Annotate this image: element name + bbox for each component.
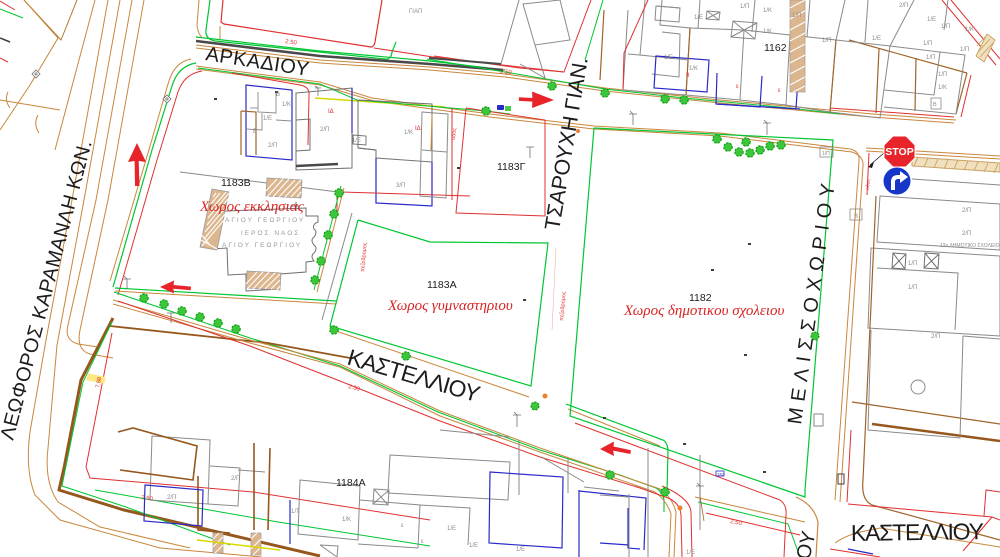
svg-text:1/Ε: 1/Ε (686, 550, 695, 556)
svg-text:1/Ε: 1/Ε (447, 526, 456, 532)
svg-text:1/Ε: 1/Ε (664, 55, 673, 61)
svg-text:ΑΓΙΟΥ ΓΕΩΡΓΙΟΥ: ΑΓΙΟΥ ΓΕΩΡΓΙΟΥ (222, 242, 302, 249)
svg-text:2/Π: 2/Π (931, 334, 940, 340)
svg-text:ε: ε (421, 539, 424, 545)
svg-text:Β: Β (854, 214, 858, 220)
svg-text:ε: ε (778, 88, 781, 94)
svg-text:ε: ε (401, 523, 404, 529)
svg-text:2/Π: 2/Π (899, 3, 908, 9)
svg-text:1/Ε: 1/Ε (469, 543, 478, 549)
svg-text:1/Κ: 1/Κ (763, 8, 772, 14)
svg-text:ΙΔ: ΙΔ (415, 126, 421, 132)
svg-text:Β: Β (933, 102, 937, 108)
svg-text:Β: Β (253, 129, 257, 135)
svg-text:1162: 1162 (764, 42, 787, 54)
svg-text:1/Π: 1/Π (941, 24, 950, 30)
svg-text:1/Ε: 1/Ε (516, 547, 525, 553)
svg-text:1183Γ: 1183Γ (497, 161, 526, 173)
svg-text:1/Π: 1/Π (908, 261, 917, 267)
svg-text:2/Π: 2/Π (231, 476, 240, 482)
svg-text:οδος: οδος (451, 128, 458, 141)
svg-text:ΙΕΡΟΣ ΝΑΟΣ: ΙΕΡΟΣ ΝΑΟΣ (241, 230, 300, 237)
svg-text:1/Κ: 1/Κ (763, 29, 772, 35)
svg-text:2/Π: 2/Π (962, 208, 971, 214)
svg-text:153: 153 (717, 472, 725, 477)
svg-text:Χωρος δημοτικου σχολειου: Χωρος δημοτικου σχολειου (623, 303, 784, 319)
svg-text:1/Ε: 1/Ε (694, 15, 703, 21)
svg-text:STOP: STOP (885, 146, 913, 158)
svg-text:1/Π: 1/Π (792, 13, 801, 19)
svg-text:2/Π: 2/Π (962, 231, 971, 237)
svg-text:1/Κ: 1/Κ (342, 517, 351, 523)
svg-text:2.50: 2.50 (500, 69, 513, 76)
svg-text:1184Α: 1184Α (336, 477, 366, 489)
svg-text:1183Α: 1183Α (427, 279, 457, 291)
svg-text:1/Ε: 1/Ε (352, 138, 361, 144)
svg-text:1/Κ: 1/Κ (938, 85, 947, 91)
svg-text:1/Π: 1/Π (740, 4, 749, 10)
svg-text:οδος: οδος (865, 178, 872, 190)
svg-text:1/Π: 1/Π (960, 47, 969, 53)
svg-text:2/Π: 2/Π (167, 495, 176, 501)
svg-text:1/Π: 1/Π (923, 41, 932, 47)
svg-text:1/Κ: 1/Κ (689, 66, 698, 72)
svg-text:1/Κ: 1/Κ (282, 102, 291, 108)
svg-text:ΙΔ: ΙΔ (328, 109, 334, 115)
svg-text:1/Π: 1/Π (822, 151, 830, 157)
svg-text:1/Τ: 1/Τ (291, 509, 300, 515)
svg-text:12ο ΔΗΜΟΤΙΚΟ ΣΧΟΛΕΙΟ: 12ο ΔΗΜΟΤΙΚΟ ΣΧΟΛΕΙΟ (940, 243, 1000, 249)
svg-text:ε: ε (736, 84, 739, 90)
svg-text:Β: Β (276, 92, 280, 98)
svg-text:ΓΙΑΠ: ΓΙΑΠ (409, 9, 422, 15)
svg-text:1/Κ: 1/Κ (965, 27, 974, 33)
svg-text:2/Π: 2/Π (320, 127, 329, 133)
svg-text:Χωρος γυμναστηριου: Χωρος γυμναστηριου (387, 298, 513, 314)
svg-text:1/Π: 1/Π (938, 72, 947, 78)
svg-text:ΑΓΙΟΥ ΓΕΩΡΓΙΟΥ: ΑΓΙΟΥ ΓΕΩΡΓΙΟΥ (225, 217, 305, 224)
svg-text:2/Π: 2/Π (268, 143, 277, 149)
svg-text:1183Β: 1183Β (221, 177, 251, 189)
svg-text:1/Π: 1/Π (926, 55, 935, 61)
svg-text:ΚΑΣΤΕΛΛΙΟΥ: ΚΑΣΤΕΛΛΙΟΥ (851, 518, 984, 546)
svg-text:Χωρος εκκλησιας: Χωρος εκκλησιας (199, 199, 305, 215)
svg-text:1/Π: 1/Π (822, 38, 831, 44)
svg-text:1/Κ: 1/Κ (404, 130, 413, 136)
svg-text:1/Ε: 1/Ε (927, 17, 936, 23)
svg-text:1/Π: 1/Π (908, 285, 917, 291)
svg-text:3/Π: 3/Π (396, 183, 405, 189)
svg-text:1/Ε: 1/Ε (263, 116, 272, 122)
svg-text:1/Ε: 1/Ε (872, 36, 881, 42)
